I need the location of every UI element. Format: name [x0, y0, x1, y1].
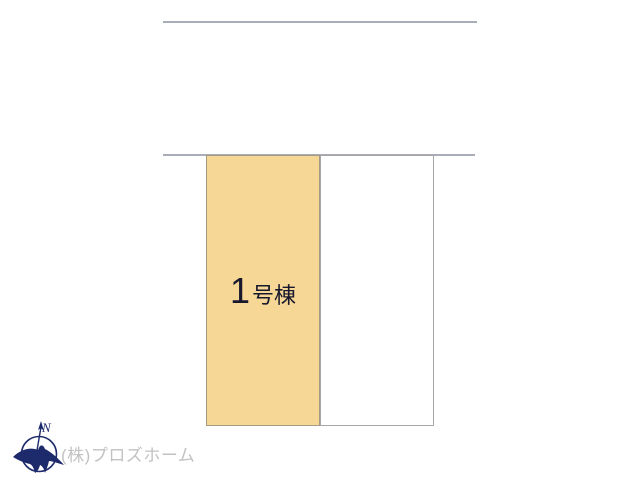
compass-logo-icon: N	[11, 418, 67, 478]
company-watermark: (株)プロズホーム	[61, 446, 195, 466]
site-plan-canvas: 1号棟 N (株)プロズホーム	[0, 0, 640, 480]
lot-1-suffix: 号棟	[252, 285, 296, 307]
compass-north-label: N	[41, 420, 52, 435]
lot-1-number: 1	[230, 273, 250, 309]
boundary-line-top	[163, 21, 477, 23]
lot-building-1: 1号棟	[206, 155, 320, 426]
lot-adjacent	[320, 155, 434, 426]
lot-1-label: 1号棟	[230, 273, 296, 309]
